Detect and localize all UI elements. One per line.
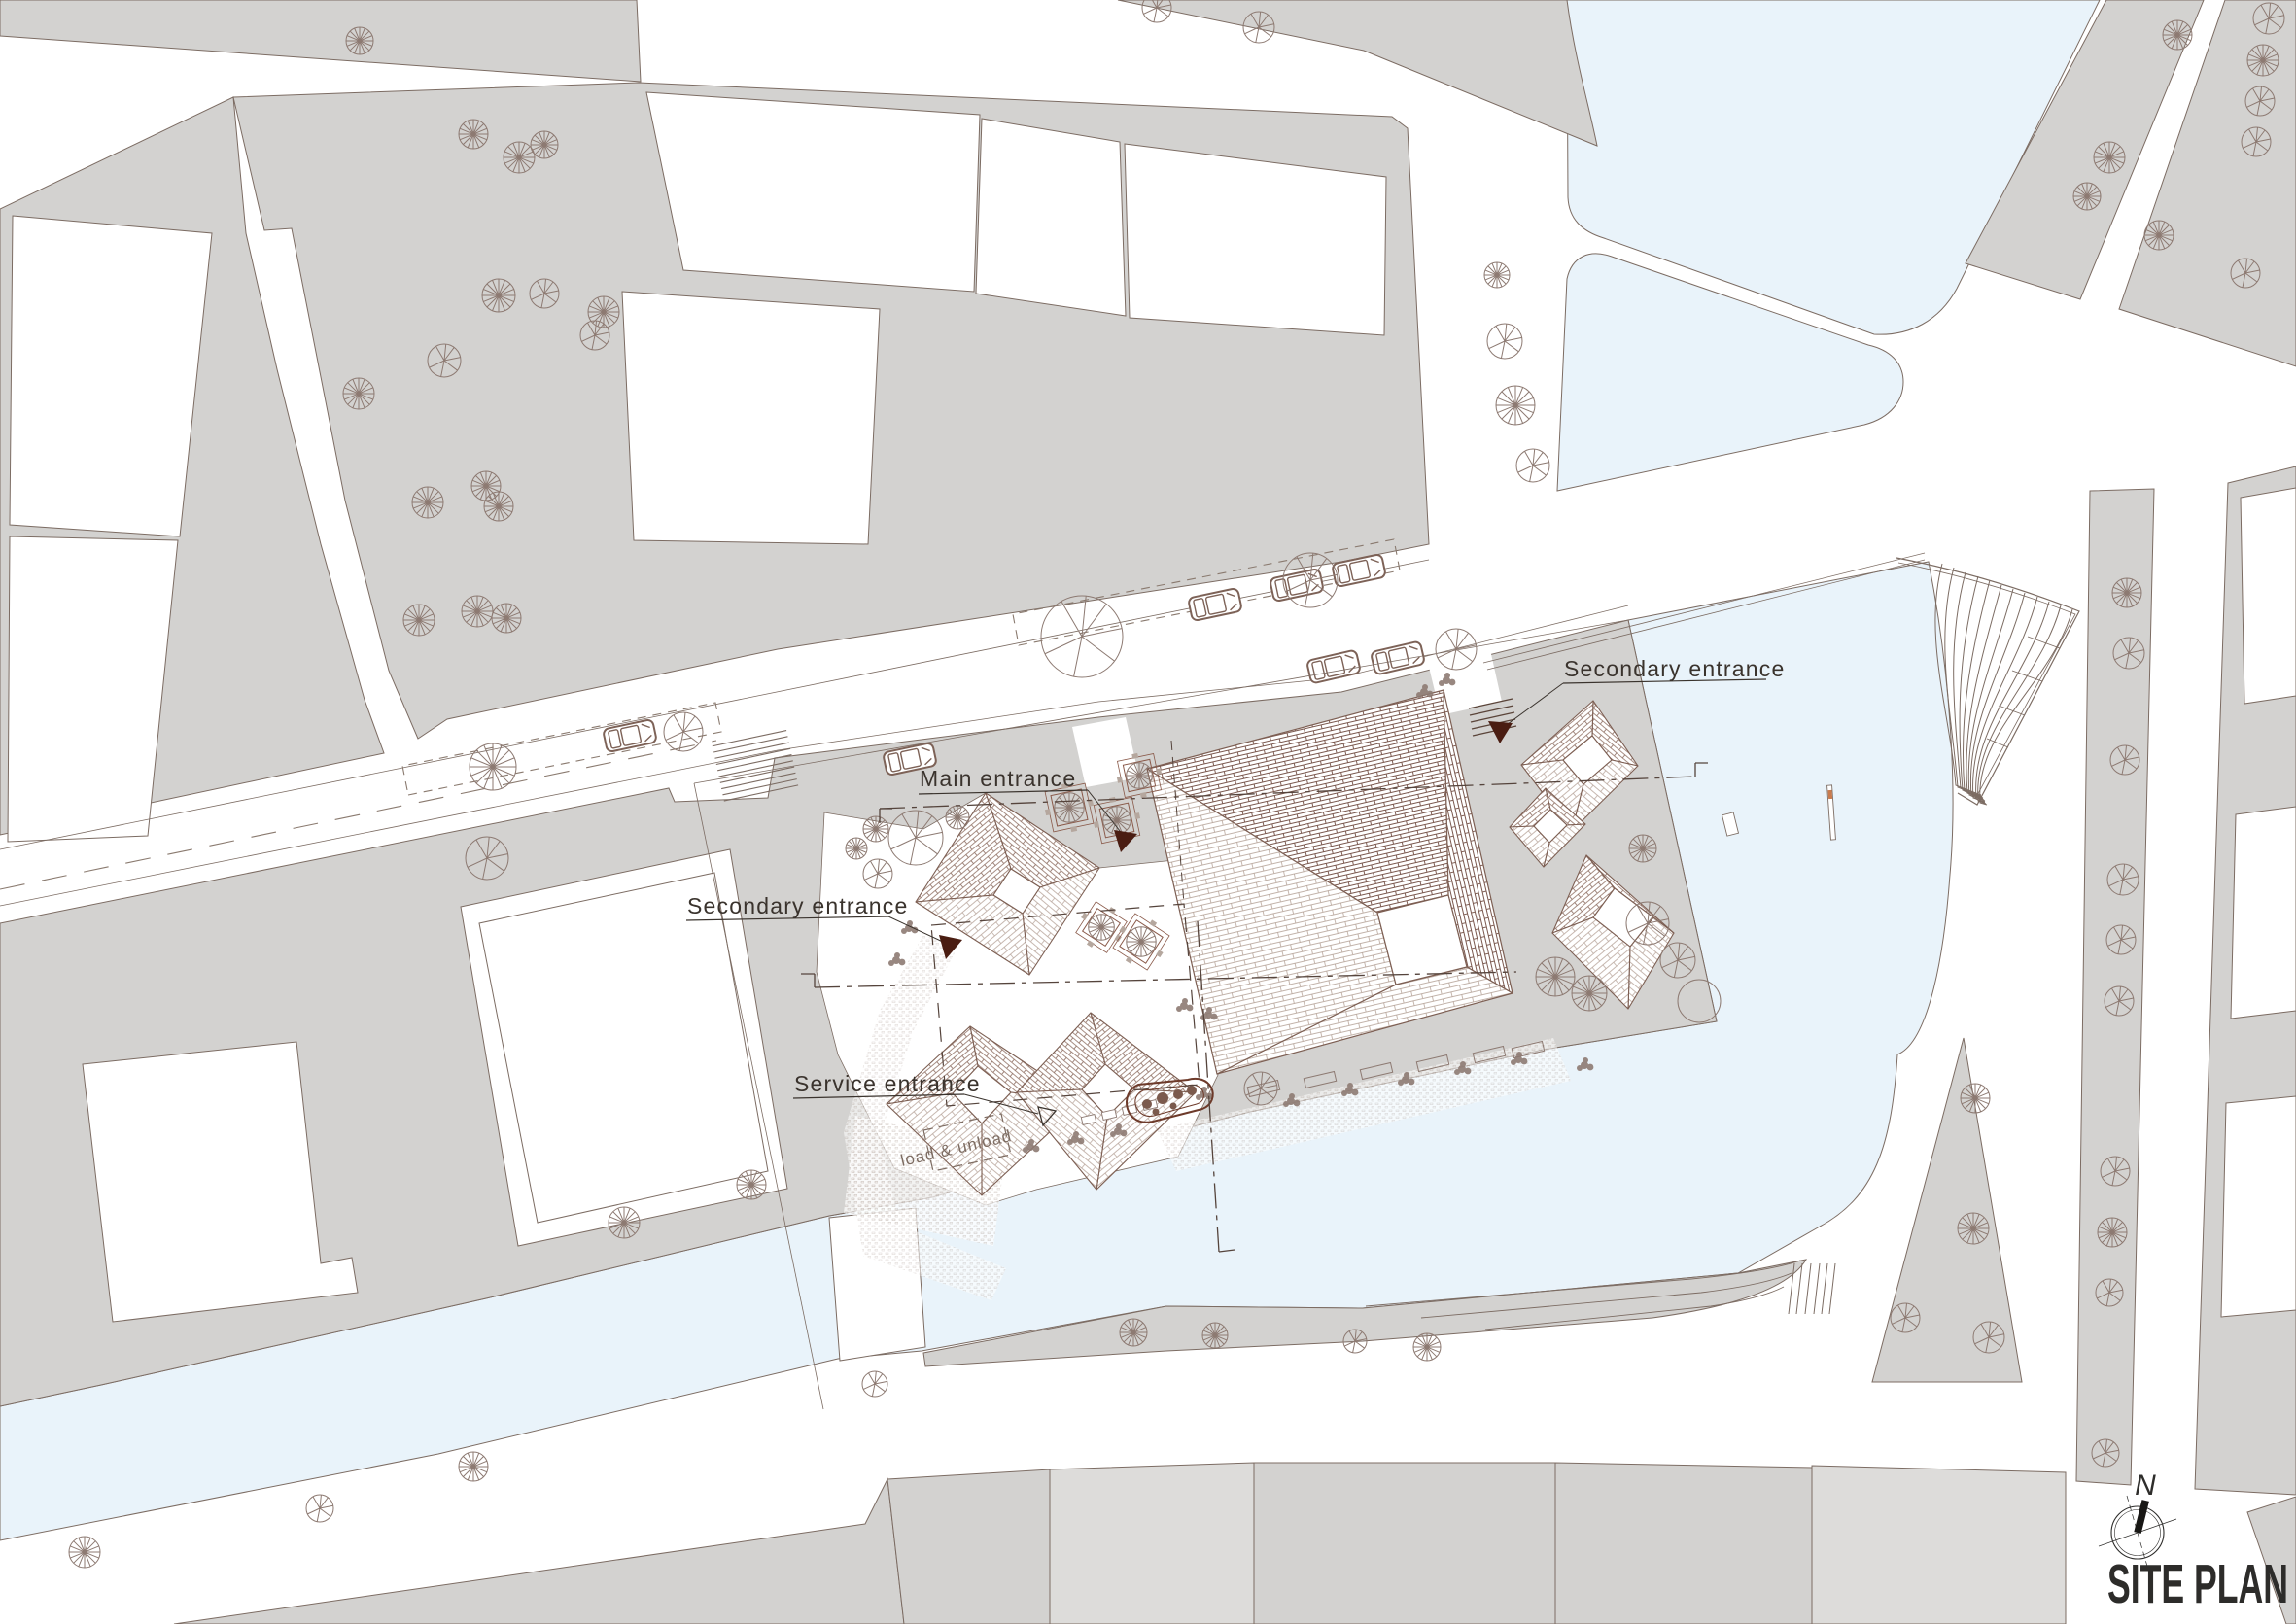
svg-text:Secondary entrance: Secondary entrance <box>687 893 908 918</box>
svg-text:Main entrance: Main entrance <box>920 766 1076 791</box>
svg-text:N: N <box>2135 1469 2156 1502</box>
svg-text:SITE PLAN: SITE PLAN <box>2107 1553 2288 1615</box>
svg-text:Service entrance: Service entrance <box>794 1071 981 1096</box>
svg-text:Secondary entrance: Secondary entrance <box>1564 656 1785 681</box>
